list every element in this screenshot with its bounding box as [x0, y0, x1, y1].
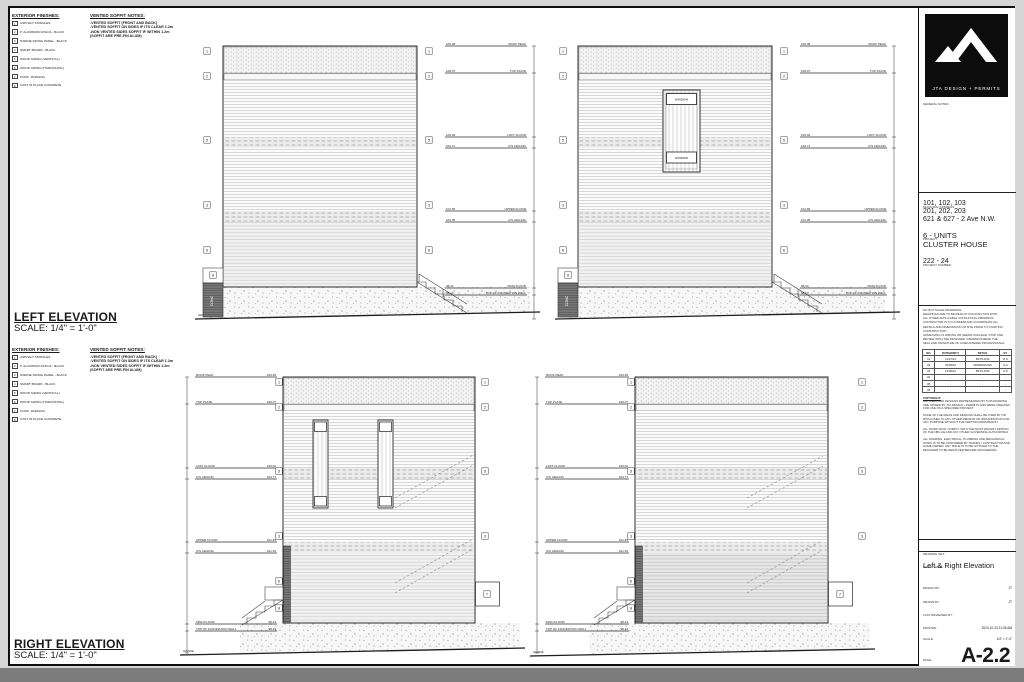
level-text: U/S CEILING — [508, 218, 527, 222]
callout-number: 3 — [206, 203, 208, 207]
level-text: 105.02 — [267, 464, 277, 468]
drawn-by-value: JT — [1008, 600, 1012, 604]
disclaimer-line: SEAL AND SIGNATURE OF A REGISTERED PROFE… — [923, 342, 1013, 346]
soffit-notes: VENTED SOFFIT NOTES: -VENTED SOFFIT (FRO… — [90, 347, 173, 426]
finish-item: 3 HARDIE SIDING PANEL - BLACK — [12, 38, 82, 44]
roof-shingle-band — [224, 47, 416, 73]
dimension-chain — [185, 377, 189, 653]
callout-number: 1 — [630, 380, 632, 384]
window-tag-top-label: WINDOW — [675, 97, 688, 101]
level-text: MAIN FLOOR — [867, 284, 887, 288]
address-line: 201, 202, 203 — [919, 208, 1016, 216]
finish-item: 7 CONC. PARGING — [12, 408, 82, 414]
stair-railing — [242, 601, 265, 618]
concrete-pilaster — [284, 546, 291, 623]
project-name: 6 - UNITSCLUSTER HOUSE — [919, 232, 1016, 249]
design-by-value: JT — [1008, 586, 1012, 590]
soffit-note-line: -VENTED SOFFIT (FRONT AND BACK) — [90, 21, 173, 25]
callout-number: 2 — [278, 405, 280, 409]
level-text: 104.71 — [801, 144, 811, 148]
level-text: ROOF PEAK — [196, 373, 214, 377]
exterior-finishes-title: EXTERIOR FINISHES: — [12, 13, 82, 18]
level-text: 98.13 — [620, 627, 628, 631]
level-text: U/S CEILING — [196, 475, 215, 479]
building-elevation — [635, 377, 828, 623]
disclaimer-notes: DO NOT SCALE DRAWINGS.DRAWINGS ARE TO BE… — [919, 309, 1016, 346]
floor-band — [636, 542, 827, 553]
project-line: CLUSTER HOUSE — [919, 241, 1016, 250]
level-text: LOFT FLOOR — [507, 133, 527, 137]
reviewed-by-row: LAST REVIEWED BY: — [919, 613, 1016, 617]
soffit-note-line: (SOFFIT ARE PRE-FIN ALUM) — [90, 368, 173, 372]
finish-label: SMART BOARD - BLACK — [20, 382, 55, 386]
siding-lower — [579, 222, 771, 287]
level-text: TOP OF FOUNDATION WALL — [486, 291, 527, 295]
callout-number: 6 — [562, 248, 564, 252]
finish-number-box: 1 — [12, 355, 18, 361]
finish-item: 1 ASPHALT SHINGLES — [12, 355, 82, 361]
copyright-body: ALL FRAMING, ELECTRICAL, PLUMBING AND ME… — [919, 438, 1016, 453]
level-text: UPPER FLOOR — [196, 538, 218, 542]
level-text: MAIN FLOOR — [507, 284, 527, 288]
soffit-notes-title: VENTED SOFFIT NOTES: — [90, 13, 173, 18]
callout-number: 7 — [486, 592, 488, 596]
siding-upper — [636, 411, 827, 468]
address-line: 101, 102, 103 — [919, 200, 1016, 208]
finish-item: 5 WOOD SIDING (VERTICAL) — [12, 390, 82, 396]
level-text: LOFT FLOOR — [196, 464, 216, 468]
printed-value: 2024-10-23 11:06 AM — [982, 626, 1012, 630]
level-text: ROOF PEAK — [546, 373, 564, 377]
revision-table: NO. DATE(D/M/Y) DETAIL BY 01 11/07/24 BP… — [919, 349, 1016, 393]
callout-number: 2 — [562, 74, 564, 78]
level-text: 105.02 — [801, 133, 811, 137]
finish-item: 7 CONC. PARGING — [12, 74, 82, 80]
siding-upper — [224, 80, 416, 137]
callout-number: 3 — [428, 203, 430, 207]
finish-number-box: 5 — [12, 390, 18, 396]
finish-label: HARDIE SIDING PANEL - BLACK — [20, 39, 67, 43]
callout-number: 8 — [630, 606, 632, 610]
logo-mark — [925, 14, 1008, 74]
callout-number: 5 — [861, 469, 863, 473]
roof-shingle-band — [636, 378, 827, 404]
copyright-body: ALL WORK MUST COMPLY WITH THE MOST RECEN… — [919, 428, 1016, 435]
copyright-notes: COPYRIGHT: ALL IDEAS AND DESIGNS REPRESE… — [919, 396, 1016, 456]
grade-label: GRADE — [533, 650, 544, 654]
general-notes-label: GENERAL NOTES: — [919, 102, 949, 106]
revision-row: 06 - - - — [923, 387, 1012, 393]
level-text: 101.65 — [267, 538, 277, 542]
level-annotations: 109.48ROOF PEAK108.07TOP PLATE105.02LOFT… — [800, 42, 887, 295]
level-annotations: ROOF PEAK109.48TOP PLATE108.07LOFT FLOOR… — [545, 373, 629, 631]
level-text: 109.48 — [267, 373, 277, 377]
finish-label: CAST IN PLACE CONCRETE — [20, 417, 61, 421]
level-annotations: 109.48ROOF PEAK108.07TOP PLATE105.02LOFT… — [445, 42, 527, 295]
callout-number: 3 — [783, 203, 785, 207]
firm-name: JTA DESIGN + PERMITS — [925, 86, 1008, 91]
rev-by: - — [999, 387, 1011, 393]
finish-label: CONC. PARGING — [20, 75, 45, 79]
callout-number: 2 — [783, 74, 785, 78]
callout-number: 8 — [567, 273, 569, 277]
level-text: 104.71 — [619, 475, 629, 479]
desk-background — [0, 668, 1024, 682]
finish-number-box: 2 — [12, 363, 18, 369]
soffit-note-line: -NON VENTED SIDES SOFFIT IF WITHIN 1.2m — [90, 30, 173, 34]
level-text: TOP PLATE — [870, 69, 886, 73]
page-label: PAGE: — [923, 658, 932, 662]
level-text: 108.07 — [267, 400, 277, 404]
callout-number: 5 — [484, 469, 486, 473]
callout-number: 3 — [562, 203, 564, 207]
finish-label: WOOD SIDING (HORIZONTAL) — [20, 66, 64, 70]
finish-item: 2 P. ALUMINUM FASCIA - BLACK — [12, 29, 82, 35]
callout-number: 3 — [278, 534, 280, 538]
reviewed-by-label: LAST REVIEWED BY: — [923, 613, 953, 617]
concrete-pilaster — [636, 546, 643, 623]
stair-stringer — [594, 600, 635, 625]
drawing-sheet-viewer: EXTERIOR FINISHES: 1 ASPHALT SHINGLES 2 … — [0, 0, 1024, 682]
level-text: UPPER FLOOR — [504, 207, 526, 211]
drawn-by-label: DRAWN BY: — [923, 600, 940, 604]
level-text: TOP PLATE — [510, 69, 526, 73]
stair-railing — [594, 601, 617, 618]
finish-item: 8 CAST IN PLACE CONCRETE — [12, 417, 82, 423]
right-elevation-scale: SCALE: 1/4" = 1'-0" — [14, 650, 97, 661]
finish-label: SMART BOARD - BLACK — [20, 48, 55, 52]
finish-item: 2 P. ALUMINUM FASCIA - BLACK — [12, 363, 82, 369]
level-text: 98.13 — [268, 627, 276, 631]
grade-label: GRADE — [183, 649, 194, 653]
callout-number: 6 — [783, 248, 785, 252]
callout-number: 3 — [484, 534, 486, 538]
finish-number-box: 6 — [12, 399, 18, 405]
level-text: 98.13 — [446, 291, 454, 295]
callout-number: 6 — [206, 248, 208, 252]
callout-number: 5 — [630, 469, 632, 473]
callout-number: 5 — [783, 138, 785, 142]
finish-label: WOOD SIDING (HORIZONTAL) — [20, 400, 64, 404]
printed-label: PRINTED: — [923, 626, 937, 630]
address-line: 621 & 627 - 2 Ave N.W. — [919, 216, 1016, 224]
left-elevation-drawing-2: GRADE WINDOW WINDOW CONC — [555, 35, 900, 335]
fascia-band — [284, 405, 474, 412]
right-elevation-title: RIGHT ELEVATION — [14, 637, 125, 651]
level-text: LOFT FLOOR — [867, 133, 887, 137]
printed-row: PRINTED: 2024-10-23 11:06 AM — [919, 626, 1016, 630]
level-text: ROOF PEAK — [868, 42, 886, 46]
copyright-body: NONE OF THE IDEAS AND DESIGNS SHALL BE U… — [919, 414, 1016, 425]
level-text: 104.71 — [267, 475, 277, 479]
callout-number: 5 — [428, 138, 430, 142]
right-elevation-drawing-2: GRADE ROOF PEAK109.48TOP PLATE10 — [530, 368, 875, 668]
finish-item: 1 ASPHALT SHINGLES — [12, 21, 82, 27]
finish-item: 6 WOOD SIDING (HORIZONTAL) — [12, 399, 82, 405]
level-text: 98.13 — [801, 291, 809, 295]
soffit-note-line: -VENTED SOFFIT ON SIDES IF ITS CLEAR 1.2… — [90, 359, 173, 363]
dimension-chain — [892, 46, 896, 319]
dimension-chain — [535, 377, 539, 653]
fascia-band — [579, 74, 771, 81]
window-strip — [378, 420, 393, 508]
level-text: TOP PLATE — [546, 400, 562, 404]
dimension-chain — [532, 46, 536, 319]
level-text: U/S CEILING — [546, 549, 565, 553]
rev-date: - — [935, 387, 966, 393]
level-text: 109.48 — [801, 42, 811, 46]
exterior-finishes-list: EXTERIOR FINISHES: 1 ASPHALT SHINGLES 2 … — [12, 13, 82, 92]
callout-number: 1 — [206, 49, 208, 53]
level-text: 108.07 — [619, 400, 629, 404]
finish-label: ASPHALT SHINGLES — [20, 21, 50, 25]
finish-number-box: 7 — [12, 74, 18, 80]
sheet-number: A-2.2 — [961, 644, 1010, 668]
finish-label: CONC. PARGING — [20, 409, 45, 413]
callout-number: 1 — [861, 380, 863, 384]
window-strip: WINDOW WINDOW — [663, 90, 700, 172]
copyright-block: ALL WORK MUST COMPLY WITH THE MOST RECEN… — [919, 428, 1016, 435]
finish-number-box: 3 — [12, 38, 18, 44]
callout-number: 2 — [630, 405, 632, 409]
level-text: 101.35 — [801, 218, 811, 222]
drawn-by-row: DRAWN BY: JT — [919, 600, 1016, 604]
window-tag-bottom-label: WINDOW — [675, 156, 688, 160]
level-text: 98.43 — [620, 620, 628, 624]
design-by-label: DESIGN BY: — [923, 586, 940, 590]
level-text: 105.02 — [619, 464, 629, 468]
rev-no: 06 — [923, 387, 935, 393]
soffit-note-line: -VENTED SOFFIT ON SIDES IF ITS CLEAR 1.2… — [90, 25, 173, 29]
level-text: U/S CEILING — [508, 144, 527, 148]
finish-label: ASPHALT SHINGLES — [20, 355, 50, 359]
level-text: 98.43 — [801, 284, 809, 288]
callout-number: 7 — [839, 592, 841, 596]
roof-shingle-band — [579, 47, 771, 73]
window-tag-bottom — [315, 497, 327, 507]
stair-landing — [617, 587, 635, 600]
level-text: U/S CEILING — [546, 475, 565, 479]
floor-band — [579, 211, 771, 222]
level-text: 109.48 — [446, 42, 456, 46]
level-text: 98.43 — [268, 620, 276, 624]
level-text: MAIN FLOOR — [546, 620, 566, 624]
callout-number: 5 — [562, 138, 564, 142]
finish-item: 3 HARDIE SIDING PANEL - BLACK — [12, 372, 82, 378]
level-text: U/S CEILING — [868, 144, 887, 148]
finish-number-box: 8 — [12, 417, 18, 423]
window-tag-bottom — [380, 497, 392, 507]
callout-number: 2 — [861, 405, 863, 409]
callout-number: 8 — [212, 273, 214, 277]
level-text: 108.07 — [801, 69, 811, 73]
finish-number-box: 2 — [12, 29, 18, 35]
left-elevation-drawing-1: GRADE CONC 109.48ROOF PEAK108.07TOP PLAT… — [195, 35, 540, 335]
finish-number-box: 8 — [12, 83, 18, 89]
floor-band — [224, 211, 416, 222]
scale-value: 1/4" = 1'-0" — [996, 637, 1012, 641]
siding-lower — [284, 553, 474, 623]
callout-number: 3 — [630, 534, 632, 538]
callout-number: 1 — [278, 380, 280, 384]
finish-number-box: 1 — [12, 21, 18, 27]
level-text: UPPER FLOOR — [864, 207, 886, 211]
fascia-band — [224, 74, 416, 81]
copyright-block: NONE OF THE IDEAS AND DESIGNS SHALL BE U… — [919, 414, 1016, 425]
callout-number: 1 — [562, 49, 564, 53]
siding-mid — [224, 148, 416, 211]
level-text: TOP OF FOUNDATION WALL — [196, 627, 237, 631]
level-text: 101.35 — [446, 218, 456, 222]
level-text: 101.65 — [801, 207, 811, 211]
exterior-finishes-list: EXTERIOR FINISHES: 1 ASPHALT SHINGLES 2 … — [12, 347, 82, 426]
level-text: 108.07 — [446, 69, 456, 73]
window-strip — [313, 420, 328, 508]
stair-stringer — [242, 600, 283, 625]
siding-lower — [636, 553, 827, 623]
roof-shingle-band — [284, 378, 474, 404]
finish-item: 4 SMART BOARD - BLACK — [12, 47, 82, 53]
floor-band — [224, 137, 416, 148]
callout-number: 1 — [484, 380, 486, 384]
finish-number-box: 3 — [12, 372, 18, 378]
callout-number: 2 — [206, 74, 208, 78]
level-text: 98.43 — [446, 284, 454, 288]
copyright-block: ALL FRAMING, ELECTRICAL, PLUMBING AND ME… — [919, 438, 1016, 453]
level-text: ROOF PEAK — [508, 42, 526, 46]
finish-item: 4 SMART BOARD - BLACK — [12, 381, 82, 387]
level-text: LOFT FLOOR — [546, 464, 566, 468]
finish-item: 6 WOOD SIDING (HORIZONTAL) — [12, 65, 82, 71]
finish-number-box: 6 — [12, 65, 18, 71]
callout-number: 5 — [206, 138, 208, 142]
level-text: TOP OF FOUNDATION WALL — [546, 627, 587, 631]
finish-number-box: 4 — [12, 47, 18, 53]
finish-number-box: 4 — [12, 381, 18, 387]
right-elevation-drawing-1: GRADE — [180, 368, 525, 668]
finish-number-box: 5 — [12, 56, 18, 62]
callout-number: 3 — [861, 534, 863, 538]
finish-label: CAST IN PLACE CONCRETE — [20, 83, 61, 87]
firm-logo: JTA DESIGN + PERMITS — [925, 14, 1008, 97]
soffit-note-line: (SOFFIT ARE PRE-FIN ALUM) — [90, 34, 173, 38]
finish-label: P. ALUMINUM FASCIA - BLACK — [20, 364, 64, 368]
level-text: 101.65 — [619, 538, 629, 542]
window-tag-top — [380, 422, 392, 432]
level-text: 104.71 — [446, 144, 456, 148]
title-block: JTA DESIGN + PERMITS GENERAL NOTES: MUNI… — [918, 8, 1015, 666]
callout-number: 2 — [428, 74, 430, 78]
finish-label: WOOD SIDING (VERTICAL) — [20, 57, 59, 61]
conc-label: CONC — [210, 295, 214, 306]
level-text: 105.02 — [446, 133, 456, 137]
finish-item: 8 CAST IN PLACE CONCRETE — [12, 83, 82, 89]
level-text: UPPER FLOOR — [546, 538, 568, 542]
floor-band — [284, 542, 474, 553]
callout-number: 2 — [484, 405, 486, 409]
finish-item: 5 WOOD SIDING (VERTICAL) — [12, 56, 82, 62]
soffit-note-line: -VENTED SOFFIT (FRONT AND BACK) — [90, 355, 173, 359]
window-tag-top — [315, 422, 327, 432]
conc-label: CONC — [565, 295, 569, 306]
notes-block-bottom: EXTERIOR FINISHES: 1 ASPHALT SHINGLES 2 … — [12, 347, 207, 426]
level-text: MAIN FLOOR — [196, 620, 216, 624]
callout-number: 1 — [428, 49, 430, 53]
sheet-name: Left & Right Elevation — [919, 561, 1016, 570]
fascia-band — [636, 405, 827, 412]
callout-number: 1 — [783, 49, 785, 53]
callout-number: 6 — [278, 579, 280, 583]
project-number: 222 - 24 — [919, 258, 1016, 265]
left-elevation-title: LEFT ELEVATION — [14, 310, 117, 324]
copyright-body: ALL IDEAS AND DESIGNS REPRESENTED BY THI… — [919, 400, 1016, 411]
rev-detail: - — [966, 387, 999, 393]
level-text: TOP OF FOUNDATION WALL — [846, 291, 887, 295]
copyright-block: COPYRIGHT: ALL IDEAS AND DESIGNS REPRESE… — [919, 396, 1016, 411]
exterior-finishes-title: EXTERIOR FINISHES: — [12, 347, 82, 352]
callout-number: 8 — [278, 606, 280, 610]
scale-row: SCALE: 1/4" = 1'-0" — [919, 637, 1016, 641]
municipal-address: 101, 102, 103201, 202, 203621 & 627 - 2 … — [919, 200, 1016, 224]
design-by-row: DESIGN BY: JT — [919, 586, 1016, 590]
stair-landing — [265, 587, 283, 600]
level-text: U/S CEILING — [868, 218, 887, 222]
finish-number-box: 7 — [12, 408, 18, 414]
left-elevation-scale: SCALE: 1/4" = 1'-0" — [14, 323, 97, 334]
callout-number: 6 — [428, 248, 430, 252]
finish-label: WOOD SIDING (VERTICAL) — [20, 391, 59, 395]
building-elevation — [223, 46, 417, 287]
level-text: U/S CEILING — [196, 549, 215, 553]
level-text: 101.35 — [267, 549, 277, 553]
level-text: TOP PLATE — [196, 400, 212, 404]
siding-mid — [636, 479, 827, 542]
soffit-note-line: -NON VENTED SIDES SOFFIT IF WITHIN 1.2m — [90, 364, 173, 368]
soffit-notes: VENTED SOFFIT NOTES: -VENTED SOFFIT (FRO… — [90, 13, 173, 92]
level-text: 101.65 — [446, 207, 456, 211]
callout-number: 6 — [630, 579, 632, 583]
level-text: 101.35 — [619, 549, 629, 553]
callout-number: 5 — [278, 469, 280, 473]
finish-label: HARDIE SIDING PANEL - BLACK — [20, 373, 67, 377]
finish-label: P. ALUMINUM FASCIA - BLACK — [20, 30, 64, 34]
scale-label: SCALE: — [923, 637, 934, 641]
notes-block-top: EXTERIOR FINISHES: 1 ASPHALT SHINGLES 2 … — [12, 13, 207, 92]
soffit-notes-title: VENTED SOFFIT NOTES: — [90, 347, 173, 352]
level-text: 109.48 — [619, 373, 629, 377]
siding-lower — [224, 222, 416, 287]
